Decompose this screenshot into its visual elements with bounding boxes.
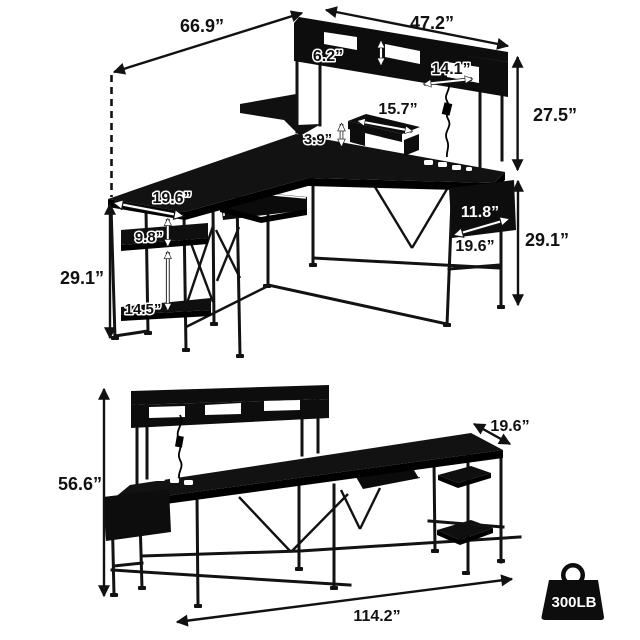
svg-text:6.2”: 6.2”: [313, 48, 343, 65]
svg-text:114.2”: 114.2”: [353, 608, 400, 625]
svg-text:14.1”: 14.1”: [431, 61, 470, 78]
svg-text:27.5”: 27.5”: [533, 105, 577, 125]
svg-text:29.1”: 29.1”: [60, 268, 104, 288]
svg-text:11.8”: 11.8”: [461, 204, 499, 221]
svg-text:66.9”: 66.9”: [180, 16, 224, 36]
svg-text:19.6”: 19.6”: [455, 238, 494, 255]
svg-text:300LB: 300LB: [551, 594, 596, 611]
svg-text:56.6”: 56.6”: [58, 474, 102, 494]
svg-text:15.7”: 15.7”: [378, 101, 417, 118]
svg-text:19.6”: 19.6”: [152, 190, 191, 207]
svg-text:19.6”: 19.6”: [490, 418, 529, 435]
svg-text:47.2”: 47.2”: [410, 13, 454, 33]
svg-text:9.8”: 9.8”: [135, 229, 163, 246]
svg-text:29.1”: 29.1”: [525, 230, 569, 250]
svg-text:14.5”: 14.5”: [125, 301, 162, 318]
svg-text:3.9”: 3.9”: [304, 131, 332, 148]
